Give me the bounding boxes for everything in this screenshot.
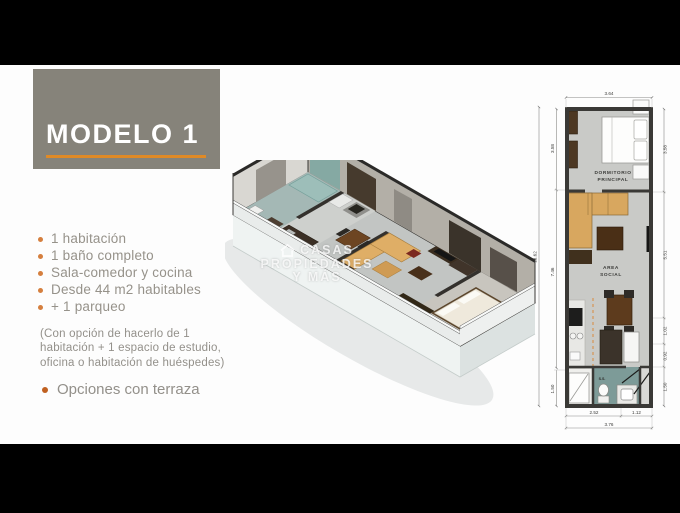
bullet-icon [38, 237, 43, 242]
feature-text: Sala-comedor y cocina [51, 265, 193, 280]
extra-feature: Opciones con terraza [42, 381, 200, 398]
feature-text: + 1 parqueo [51, 299, 126, 314]
list-item: 1 baño completo [38, 248, 201, 265]
dim-left-bedroom: 3.58 [550, 144, 555, 153]
list-item: Desde 44 m2 habitables [38, 282, 201, 299]
bullet-icon [42, 387, 48, 393]
dim-left-bath: 1.50 [550, 384, 555, 393]
list-item: 1 habitación [38, 231, 201, 248]
list-item: Sala-comedor y cocina [38, 265, 201, 282]
title-box: MODELO 1 [33, 69, 220, 169]
bullet-icon [38, 305, 43, 310]
bullet-icon [38, 254, 43, 259]
letterbox-top [0, 0, 680, 65]
extra-feature-text: Opciones con terraza [57, 381, 200, 398]
social-label: AREA [603, 265, 619, 271]
dim-right-hall: 0.92 [663, 351, 668, 360]
dim-bottom-kitchen: 2.52 [590, 410, 599, 415]
feature-text: Desde 44 m2 habitables [51, 282, 201, 297]
bedroom-label2: PRINCIPAL [598, 177, 629, 183]
slide-background: MODELO 1 1 habitación 1 baño completo Sa… [0, 65, 680, 444]
dim-left-total: 13.62 [533, 251, 538, 263]
floorplan-2d: DORMITORIO PRINCIPAL AREA SOCIAL S.S. [525, 88, 680, 440]
dim-top-width: 3.64 [605, 91, 614, 96]
title-underline [46, 155, 206, 158]
feature-text: 1 habitación [51, 231, 126, 246]
bullet-icon [38, 288, 43, 293]
dim-bottom-total: 3.76 [605, 422, 614, 427]
floorplan-3d [225, 160, 555, 440]
feature-list: 1 habitación 1 baño completo Sala-comedo… [38, 231, 201, 316]
feature-text: 1 baño completo [51, 248, 154, 263]
letterbox-bottom [0, 444, 680, 513]
bath-label: S.S. [599, 377, 606, 381]
dim-left-social: 7.46 [550, 267, 555, 276]
social-label2: SOCIAL [600, 272, 622, 278]
bedroom-label: DORMITORIO [594, 170, 631, 176]
list-item: + 1 parqueo [38, 299, 201, 316]
dim-right-social: 5.51 [663, 250, 668, 259]
option-note: (Con opción de hacerlo de 1 habitación +… [40, 327, 240, 370]
dim-bottom-entry: 1.12 [632, 410, 641, 415]
screenshot-stage: MODELO 1 1 habitación 1 baño completo Sa… [0, 0, 680, 513]
page-title: MODELO 1 [46, 119, 199, 150]
dim-right-bath: 1.50 [663, 382, 668, 391]
bullet-icon [38, 271, 43, 276]
dim-right-kitchen: 1.02 [663, 326, 668, 335]
dim-right-bedroom: 3.58 [663, 145, 668, 154]
